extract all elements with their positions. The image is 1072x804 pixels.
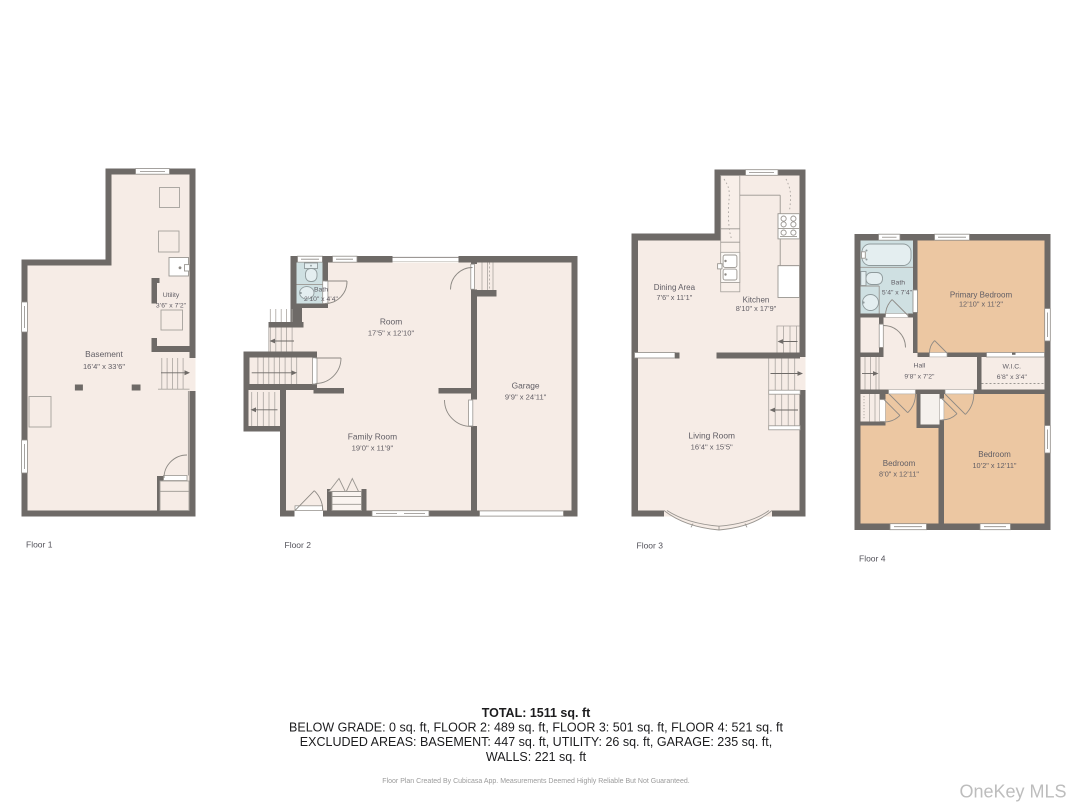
- svg-text:9’9" x 24’11": 9’9" x 24’11": [505, 393, 547, 402]
- svg-text:Bedroom: Bedroom: [978, 450, 1011, 459]
- svg-text:EXCLUDED AREAS: BASEMENT: 447: EXCLUDED AREAS: BASEMENT: 447 sq. ft, UT…: [300, 735, 772, 749]
- svg-text:Living Room: Living Room: [688, 430, 735, 440]
- svg-text:10’2" x 12’11": 10’2" x 12’11": [973, 461, 1017, 470]
- svg-text:W.I.C.: W.I.C.: [1003, 363, 1022, 370]
- svg-text:Garage: Garage: [512, 381, 540, 391]
- svg-text:Bedroom: Bedroom: [883, 459, 916, 468]
- svg-text:Floor 1: Floor 1: [26, 540, 53, 550]
- svg-text:2’10" x 4’4": 2’10" x 4’4": [304, 296, 339, 303]
- svg-text:19’0" x 11’9": 19’0" x 11’9": [352, 444, 394, 453]
- svg-text:OneKey MLS: OneKey MLS: [959, 782, 1066, 802]
- svg-text:WALLS: 221 sq. ft: WALLS: 221 sq. ft: [486, 750, 587, 764]
- svg-text:Hall: Hall: [914, 363, 926, 370]
- svg-text:7’6" x 11’1": 7’6" x 11’1": [656, 293, 692, 302]
- svg-text:Basement: Basement: [85, 349, 123, 359]
- svg-text:8’0" x 12’11": 8’0" x 12’11": [879, 470, 919, 479]
- svg-text:Primary Bedroom: Primary Bedroom: [950, 290, 1013, 299]
- svg-text:TOTAL: 1511 sq. ft: TOTAL: 1511 sq. ft: [482, 706, 591, 720]
- svg-text:Utility: Utility: [163, 292, 180, 299]
- svg-text:Family Room: Family Room: [348, 432, 397, 442]
- svg-text:8’10" x 17’9": 8’10" x 17’9": [736, 304, 777, 313]
- svg-text:Room: Room: [380, 317, 402, 327]
- svg-text:16’4" x 33’6": 16’4" x 33’6": [83, 362, 125, 371]
- svg-text:Floor 2: Floor 2: [285, 540, 312, 550]
- svg-text:17’5" x 12’10": 17’5" x 12’10": [368, 329, 415, 338]
- svg-text:Bath: Bath: [314, 286, 328, 293]
- svg-text:5’4" x 7’4": 5’4" x 7’4": [882, 289, 913, 296]
- svg-text:9’8" x 7’2": 9’8" x 7’2": [904, 373, 935, 380]
- svg-text:Dining Area: Dining Area: [654, 283, 696, 292]
- svg-text:12’10" x 11’2": 12’10" x 11’2": [959, 299, 1003, 308]
- svg-text:6’8" x 3’4": 6’8" x 3’4": [997, 374, 1028, 381]
- svg-text:BELOW GRADE: 0 sq. ft, FLOOR 2: BELOW GRADE: 0 sq. ft, FLOOR 2: 489 sq. …: [289, 721, 783, 735]
- svg-text:16’4" x 15’5": 16’4" x 15’5": [691, 442, 733, 451]
- svg-text:Floor Plan Created By Cubicasa: Floor Plan Created By Cubicasa App. Meas…: [382, 778, 689, 785]
- svg-text:Kitchen: Kitchen: [743, 295, 770, 304]
- svg-text:Floor 4: Floor 4: [859, 554, 886, 564]
- svg-text:Floor 3: Floor 3: [637, 541, 664, 551]
- svg-text:Bath: Bath: [891, 280, 905, 287]
- svg-text:3’6" x 7’2": 3’6" x 7’2": [156, 303, 187, 310]
